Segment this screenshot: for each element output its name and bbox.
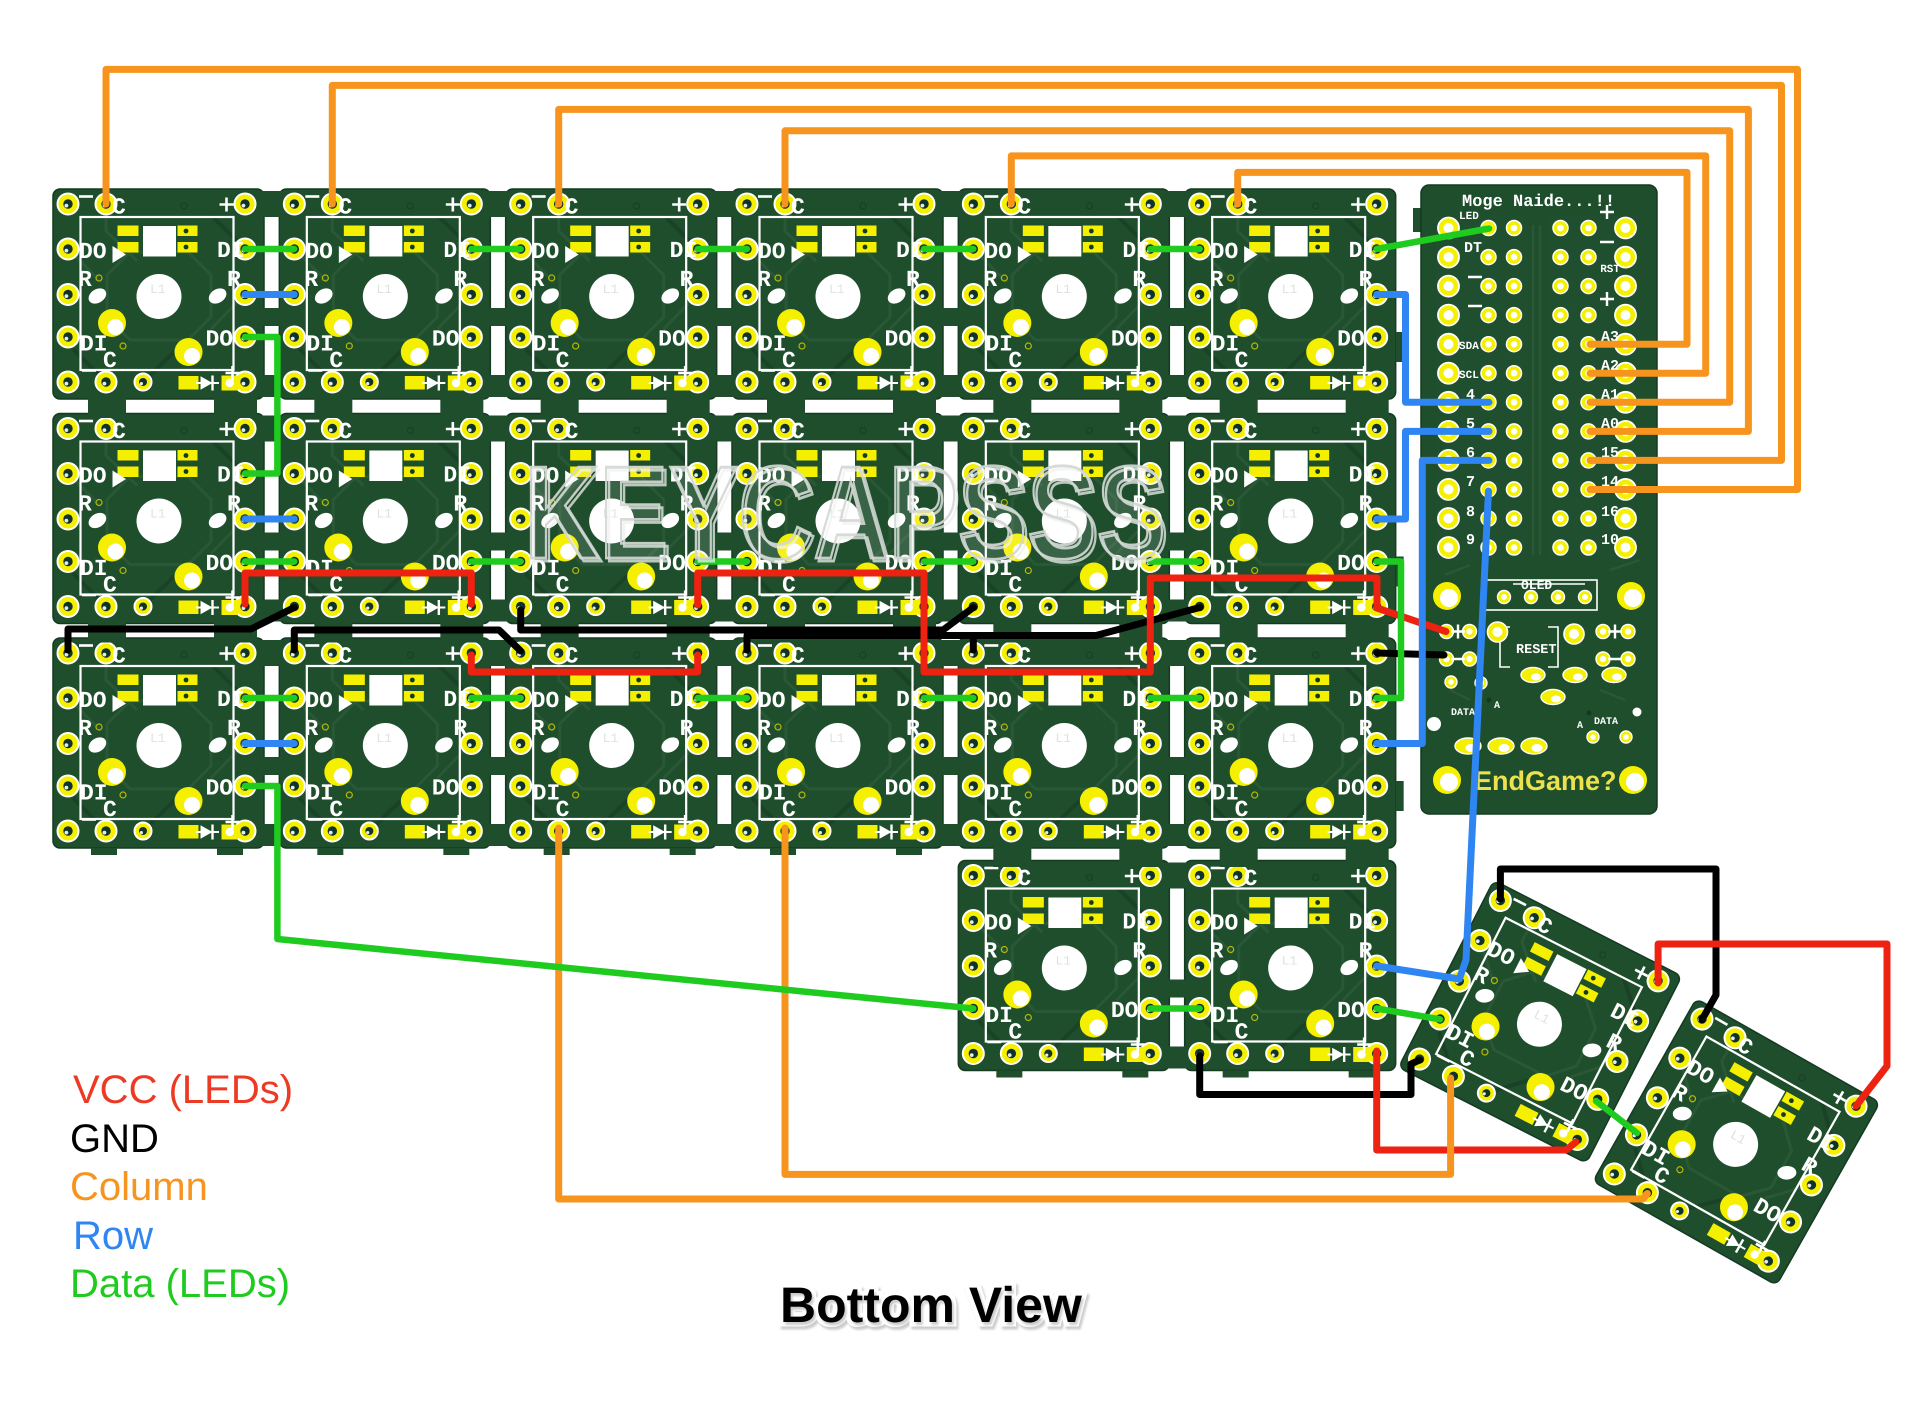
svg-text:DT: DT: [1464, 240, 1482, 257]
svg-text:VCC (LEDs): VCC (LEDs): [73, 1068, 293, 1112]
svg-text:Row: Row: [73, 1214, 153, 1258]
svg-text:DATA: DATA: [1451, 708, 1475, 719]
svg-text:RST: RST: [1600, 264, 1620, 276]
svg-text:Bottom View: Bottom View: [780, 1277, 1082, 1333]
svg-text:EndGame?: EndGame?: [1474, 766, 1617, 796]
svg-text:10: 10: [1601, 532, 1619, 549]
svg-text:Moge Naide...!!: Moge Naide...!!: [1462, 193, 1615, 212]
svg-text:9: 9: [1466, 532, 1475, 549]
svg-text:A: A: [1494, 701, 1500, 712]
svg-text:GND: GND: [70, 1117, 159, 1161]
svg-text:LED: LED: [1459, 211, 1479, 223]
svg-text:8: 8: [1466, 504, 1475, 521]
svg-text:A: A: [1577, 721, 1583, 732]
svg-text:RESET: RESET: [1516, 643, 1557, 658]
svg-text:SCL: SCL: [1459, 370, 1479, 382]
svg-text:KEYCAPSSS: KEYCAPSSS: [524, 439, 1166, 586]
svg-text:DATA: DATA: [1594, 717, 1618, 728]
svg-text:SDA: SDA: [1459, 341, 1479, 353]
svg-text:Data (LEDs): Data (LEDs): [70, 1262, 290, 1306]
svg-text:7: 7: [1466, 474, 1475, 491]
svg-text:Column: Column: [70, 1165, 208, 1209]
svg-text:OLED: OLED: [1521, 578, 1552, 593]
svg-text:16: 16: [1601, 504, 1619, 521]
